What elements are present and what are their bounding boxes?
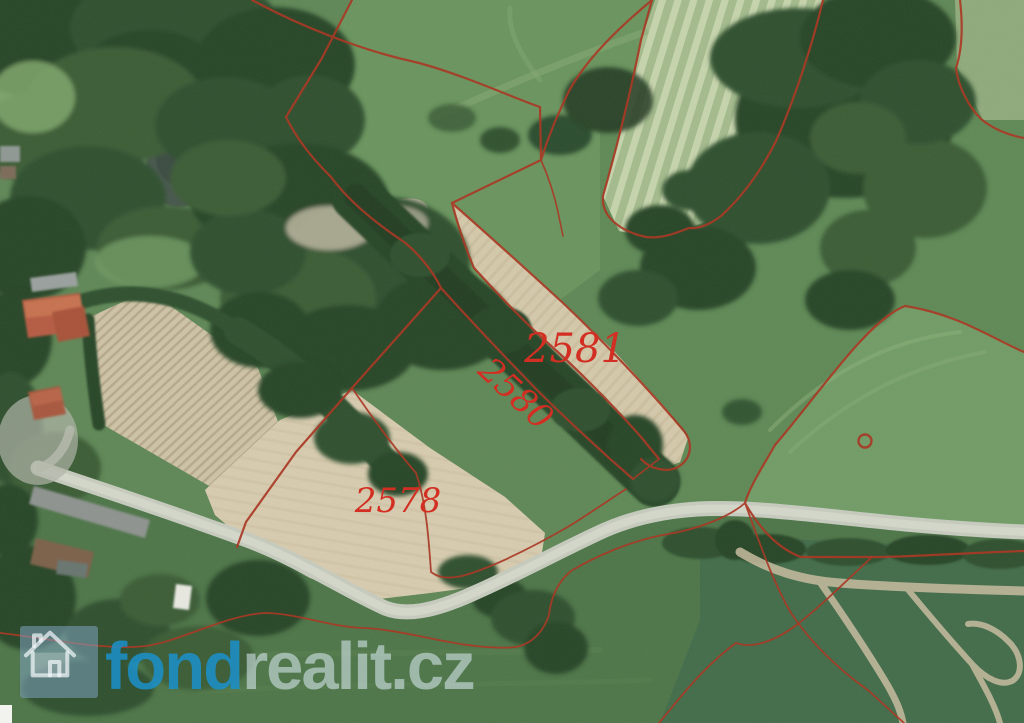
photo-grain [0, 0, 1024, 723]
house-icon [20, 626, 98, 698]
brand-fond: fond [105, 629, 242, 704]
aerial-map: 2581 2580 2578 [0, 0, 1024, 723]
watermark-logo: fondrealit.cz [20, 626, 474, 698]
scan-artifact [0, 705, 12, 723]
house-glyph [20, 626, 80, 682]
brand-wordmark: fondrealit.cz [105, 636, 474, 698]
brand-realit-cz: realit.cz [242, 629, 474, 704]
map-viewport: 2581 2580 2578 fondrealit.cz [0, 0, 1024, 723]
